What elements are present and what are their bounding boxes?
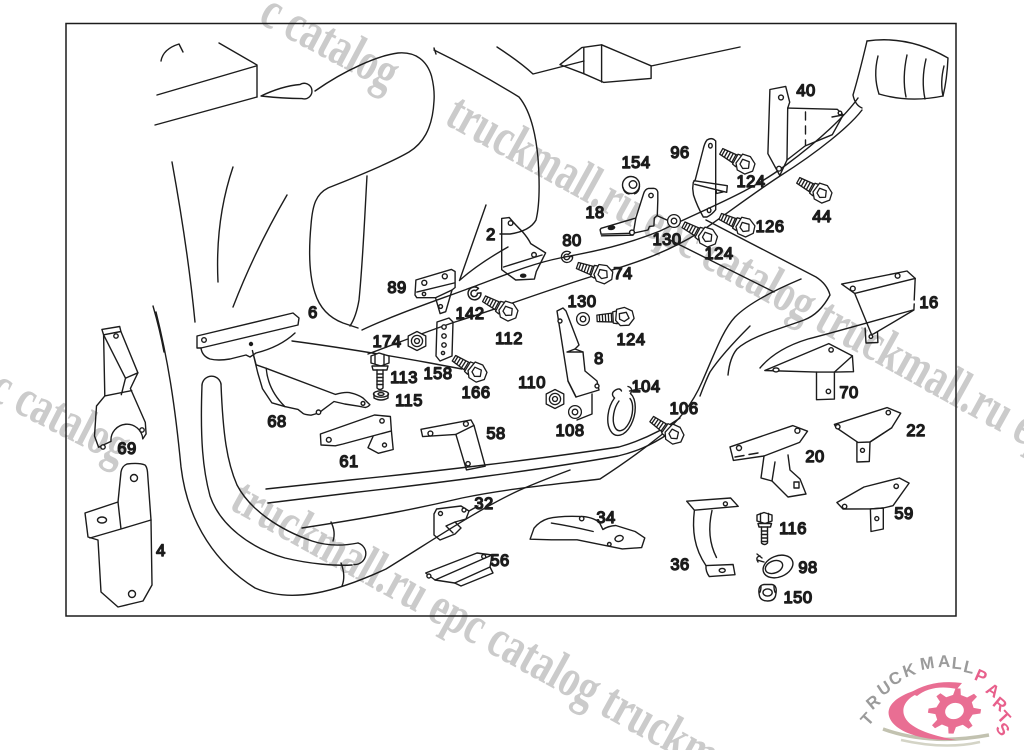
- svg-text:34: 34: [596, 509, 615, 527]
- svg-text:154: 154: [621, 154, 650, 172]
- svg-text:80: 80: [562, 232, 581, 250]
- svg-text:L: L: [951, 654, 963, 674]
- svg-text:68: 68: [267, 413, 286, 431]
- svg-text:130: 130: [652, 231, 681, 249]
- svg-text:40: 40: [796, 82, 815, 100]
- svg-text:8: 8: [594, 350, 604, 368]
- svg-text:104: 104: [631, 378, 660, 396]
- svg-text:110: 110: [518, 374, 546, 392]
- svg-text:18: 18: [585, 204, 604, 222]
- svg-text:124: 124: [704, 245, 733, 263]
- svg-text:32: 32: [474, 495, 493, 513]
- svg-text:130: 130: [567, 293, 596, 311]
- svg-text:70: 70: [839, 384, 858, 402]
- svg-text:124: 124: [736, 173, 765, 191]
- svg-text:6: 6: [308, 304, 318, 322]
- svg-text:112: 112: [495, 330, 523, 348]
- svg-text:36: 36: [670, 556, 689, 574]
- svg-text:98: 98: [798, 559, 817, 577]
- svg-text:106: 106: [669, 400, 698, 418]
- svg-text:M: M: [919, 653, 936, 674]
- svg-text:166: 166: [461, 384, 490, 402]
- svg-text:20: 20: [805, 448, 824, 466]
- svg-text:59: 59: [894, 505, 913, 523]
- svg-text:56: 56: [490, 552, 509, 570]
- svg-text:4: 4: [156, 542, 166, 560]
- svg-text:116: 116: [779, 520, 807, 538]
- svg-text:22: 22: [906, 422, 925, 440]
- svg-text:61: 61: [339, 453, 358, 471]
- svg-text:115: 115: [395, 392, 423, 410]
- svg-text:16: 16: [919, 294, 938, 312]
- svg-text:89: 89: [387, 279, 406, 297]
- svg-text:126: 126: [755, 218, 784, 236]
- svg-text:69: 69: [117, 440, 136, 458]
- svg-text:74: 74: [613, 265, 632, 283]
- svg-text:124: 124: [616, 331, 645, 349]
- svg-text:142: 142: [455, 305, 484, 323]
- svg-text:96: 96: [670, 144, 689, 162]
- svg-text:174: 174: [372, 333, 401, 351]
- svg-text:A: A: [938, 652, 951, 671]
- svg-text:108: 108: [555, 422, 584, 440]
- svg-text:58: 58: [486, 425, 505, 443]
- svg-text:113: 113: [390, 369, 418, 387]
- svg-text:150: 150: [783, 589, 812, 607]
- svg-text:44: 44: [812, 208, 831, 226]
- svg-text:158: 158: [423, 365, 452, 383]
- svg-text:2: 2: [486, 226, 496, 244]
